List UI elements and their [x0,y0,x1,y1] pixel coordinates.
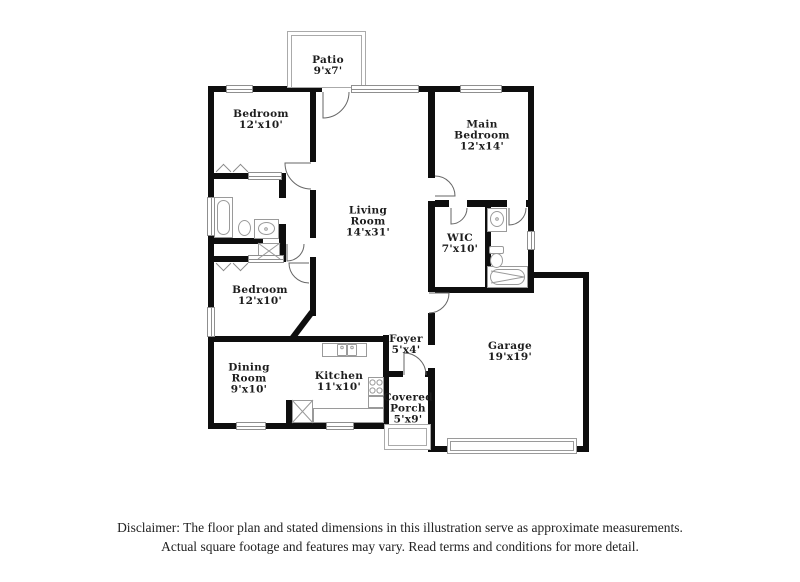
garage-north-wall [528,272,589,278]
sink-basin-icon [490,211,504,227]
stove-icon [368,377,384,396]
disclaimer-line-1: Disclaimer: The floor plan and stated di… [0,519,800,538]
room-label-patio: Patio 9'x7' [312,55,344,77]
patio-door-arc [323,92,349,118]
window [226,85,253,93]
pedestal-sink-icon [238,220,251,236]
sink-basin-icon [258,222,275,235]
floor-plan-canvas: Patio 9'x7'Bedroom 12'x10'Main Bedroom 1… [0,0,800,582]
door-opening [310,238,316,257]
wic-door-arc [451,208,467,224]
toilet-bowl-icon [490,253,503,268]
closet-door [248,172,282,180]
bedrooms-east-wall [310,86,316,316]
porch-step-inner [388,428,427,446]
room-label-main-bedroom: Main Bedroom 12'x14' [454,119,510,152]
door-opening [310,162,316,190]
closet-door [248,255,284,263]
window [207,197,215,236]
room-label-dining-room: Dining Room 9'x10' [228,362,270,395]
bedroom2-door-arc [289,263,309,283]
kitchen-cabinet [368,396,384,408]
bath1-door-arc [287,244,304,261]
right-exterior-wall [528,86,534,293]
room-label-kitchen: Kitchen 11'x10' [315,371,363,393]
door-opening [507,200,526,207]
window [351,85,419,93]
room-label-bedroom-1: Bedroom 12'x10' [233,109,289,131]
garage-door-inner [450,441,574,451]
door-opening [428,292,435,313]
window [460,85,502,93]
door-opening [428,178,435,201]
pantry-box [292,400,313,423]
kitchen-north-wall [289,336,383,342]
window [236,422,266,430]
kitchen-sink-icon [347,344,357,356]
kitchen-sink-icon [337,344,347,356]
bath2-door-arc [509,208,526,225]
room-label-wic: WIC 7'x10' [442,233,478,255]
room-label-covered-porch: Covered Porch 5'x9' [383,392,433,425]
main-bedroom-door-arc [435,176,455,196]
room-label-foyer: Foyer 5'x4' [389,334,423,356]
room-label-garage: Garage 19'x19' [488,341,532,363]
room-label-bedroom-2: Bedroom 12'x10' [232,285,288,307]
door-opening [403,371,425,377]
bathtub-inner [490,269,525,285]
bathtub-inner [217,200,230,235]
kitchen-counter [313,408,384,423]
bedroom1-door-arc [285,163,311,189]
garage-east-wall [583,272,589,452]
room-label-living-room: Living Room 14'x31' [346,205,390,238]
window [207,307,215,337]
window [326,422,354,430]
bedroom2-south-wall [208,336,292,342]
window [527,231,535,250]
disclaimer-line-2: Actual square footage and features may v… [0,538,800,557]
door-opening [428,345,435,368]
disclaimer: Disclaimer: The floor plan and stated di… [0,519,800,557]
door-opening [449,200,467,207]
